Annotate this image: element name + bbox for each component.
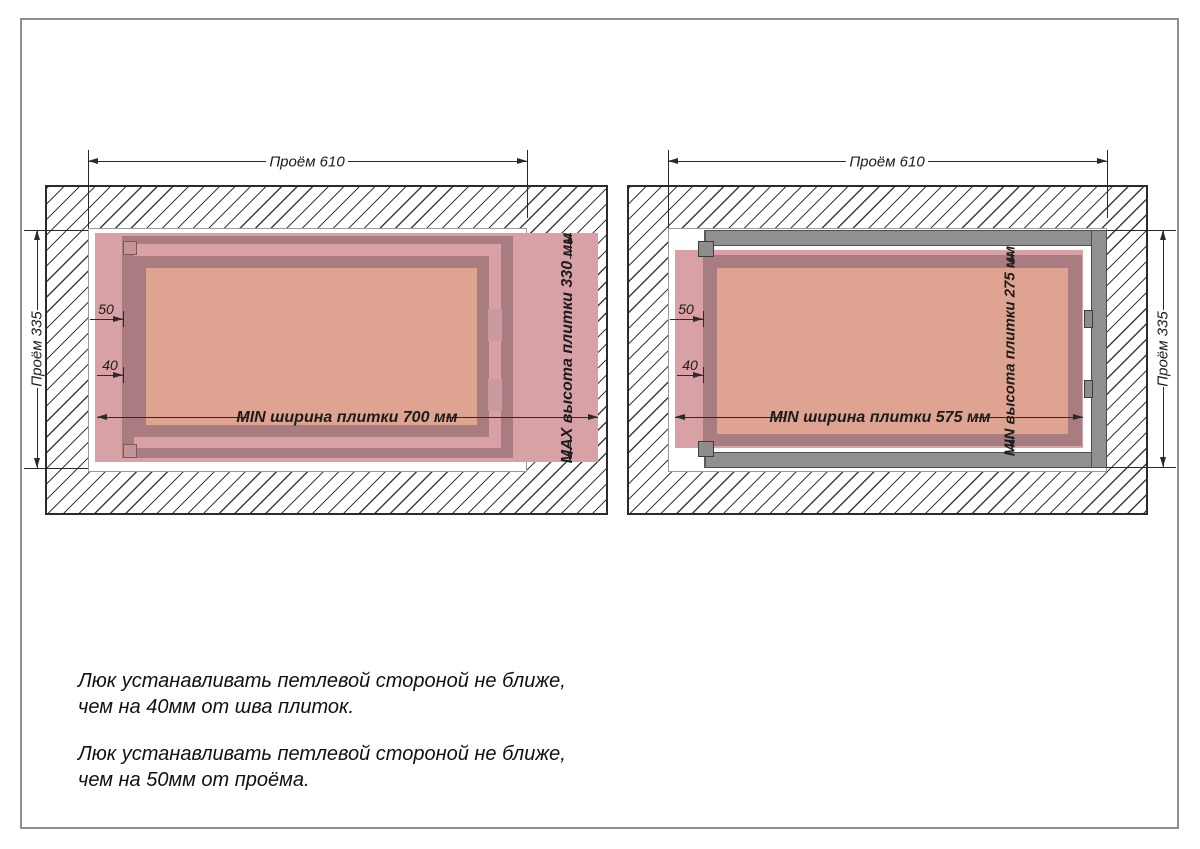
left-dim-40-label: 40	[102, 357, 118, 373]
dim-arrow-left-icon	[675, 414, 685, 420]
dim-arrow-left-icon	[97, 414, 107, 420]
dim-arrow-down-icon	[34, 458, 40, 468]
right-dim-tile-min-width-label: MIN ширина плитки 575 мм	[769, 409, 990, 427]
left-dim-height-ext-bottom	[24, 468, 88, 469]
dim-arrow-right-icon	[113, 316, 123, 322]
dim-arrow-right-icon	[517, 158, 527, 164]
left-dim-width-line	[88, 161, 266, 162]
dim-arrow-up-icon	[34, 230, 40, 240]
dim-arrow-right-icon	[693, 316, 703, 322]
left-hinge-bottom	[123, 444, 137, 458]
left-dim-height-line	[37, 230, 38, 310]
right-dim-opening-width-label: Проём 610	[849, 154, 924, 171]
dim-arrow-left-icon	[88, 158, 98, 164]
left-hatch-door	[146, 268, 477, 425]
right-dim-minwidth-line	[975, 417, 1083, 418]
left-hinge-top	[123, 241, 137, 255]
right-dim-opening-height-label: Проём 335	[1155, 311, 1172, 386]
left-latch-bottom	[488, 379, 502, 411]
right-dim-tile-min-height-label: MIN высота плитки 275 мм	[1002, 246, 1019, 456]
right-latch-top	[1084, 310, 1093, 328]
left-dim-width-line	[348, 161, 527, 162]
dim-arrow-right-icon	[588, 414, 598, 420]
right-hinge-bottom	[698, 441, 714, 457]
left-dim-50-tick	[123, 311, 125, 327]
dim-arrow-up-icon	[1160, 230, 1166, 240]
right-dim-40-tick	[703, 367, 705, 383]
right-steel-frame-top	[705, 230, 1107, 246]
left-dim-height-line	[37, 388, 38, 468]
left-dim-width-ext-right	[527, 150, 528, 218]
right-dim-40-label: 40	[682, 357, 698, 373]
dim-arrow-left-icon	[668, 158, 678, 164]
right-latch-bottom	[1084, 380, 1093, 398]
dim-arrow-right-icon	[1073, 414, 1083, 420]
dim-arrow-right-icon	[1097, 158, 1107, 164]
right-dim-height-line	[1163, 387, 1164, 467]
left-latch-top	[488, 309, 502, 341]
right-steel-frame-right	[1091, 230, 1107, 468]
note-opening-clearance: Люк устанавливать петлевой стороной не б…	[78, 741, 566, 793]
drawing-sheet: Проём 610 Проём 335 50 40 MIN ширина пли…	[0, 0, 1200, 849]
right-hinge-top	[698, 241, 714, 257]
right-steel-frame-bottom	[705, 452, 1107, 468]
right-dim-height-ext-bottom	[1107, 467, 1176, 468]
left-dim-opening-width-label: Проём 610	[269, 154, 344, 171]
note-seam-clearance: Люк устанавливать петлевой стороной не б…	[78, 668, 566, 720]
left-dim-50-label: 50	[98, 301, 114, 317]
left-dim-minwidth-line	[97, 417, 249, 418]
right-dim-50-tick	[703, 311, 705, 327]
left-dim-tile-max-height-label: MAX высота плитки 330 мм	[559, 233, 577, 463]
dim-arrow-down-icon	[1160, 457, 1166, 467]
left-dim-40-tick	[123, 367, 125, 383]
right-dim-height-line	[1163, 230, 1164, 310]
right-dim-50-label: 50	[678, 301, 694, 317]
left-dim-tile-min-width-label: MIN ширина плитки 700 мм	[236, 409, 457, 427]
right-dim-width-line	[668, 161, 846, 162]
right-dim-width-line	[928, 161, 1107, 162]
right-dim-width-ext-right	[1107, 150, 1108, 218]
left-dim-opening-height-label: Проём 335	[29, 311, 46, 386]
